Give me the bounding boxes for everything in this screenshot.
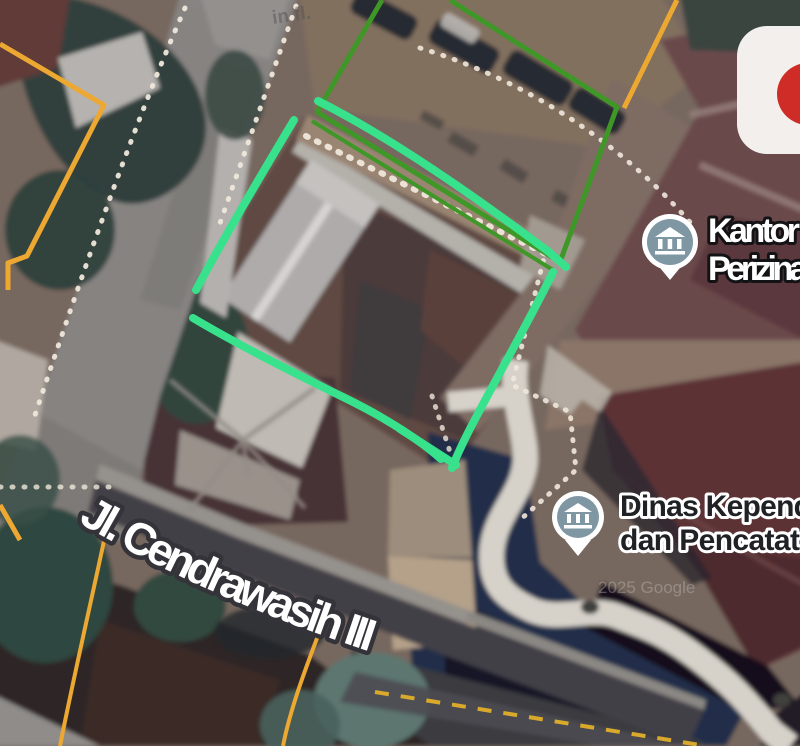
svg-text:Dinas Kepend: Dinas Kepend [620,490,800,523]
svg-text:Perizina: Perizina [708,250,800,288]
svg-text:Kantor: Kantor [708,212,800,250]
svg-text:2025 Google: 2025 Google [598,578,695,597]
svg-text:dan Pencatat: dan Pencatat [620,524,800,557]
